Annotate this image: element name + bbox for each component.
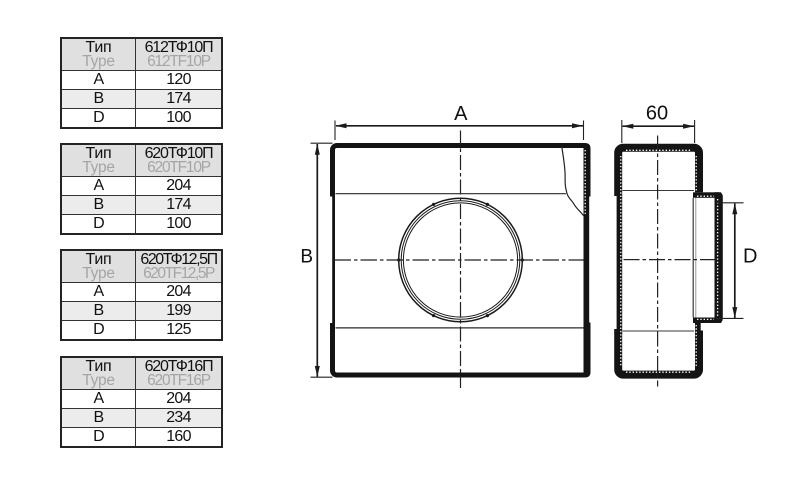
svg-text:60: 60: [646, 102, 668, 124]
svg-text:D: D: [743, 246, 757, 268]
svg-text:B: B: [300, 247, 313, 268]
svg-text:A: A: [454, 103, 468, 125]
